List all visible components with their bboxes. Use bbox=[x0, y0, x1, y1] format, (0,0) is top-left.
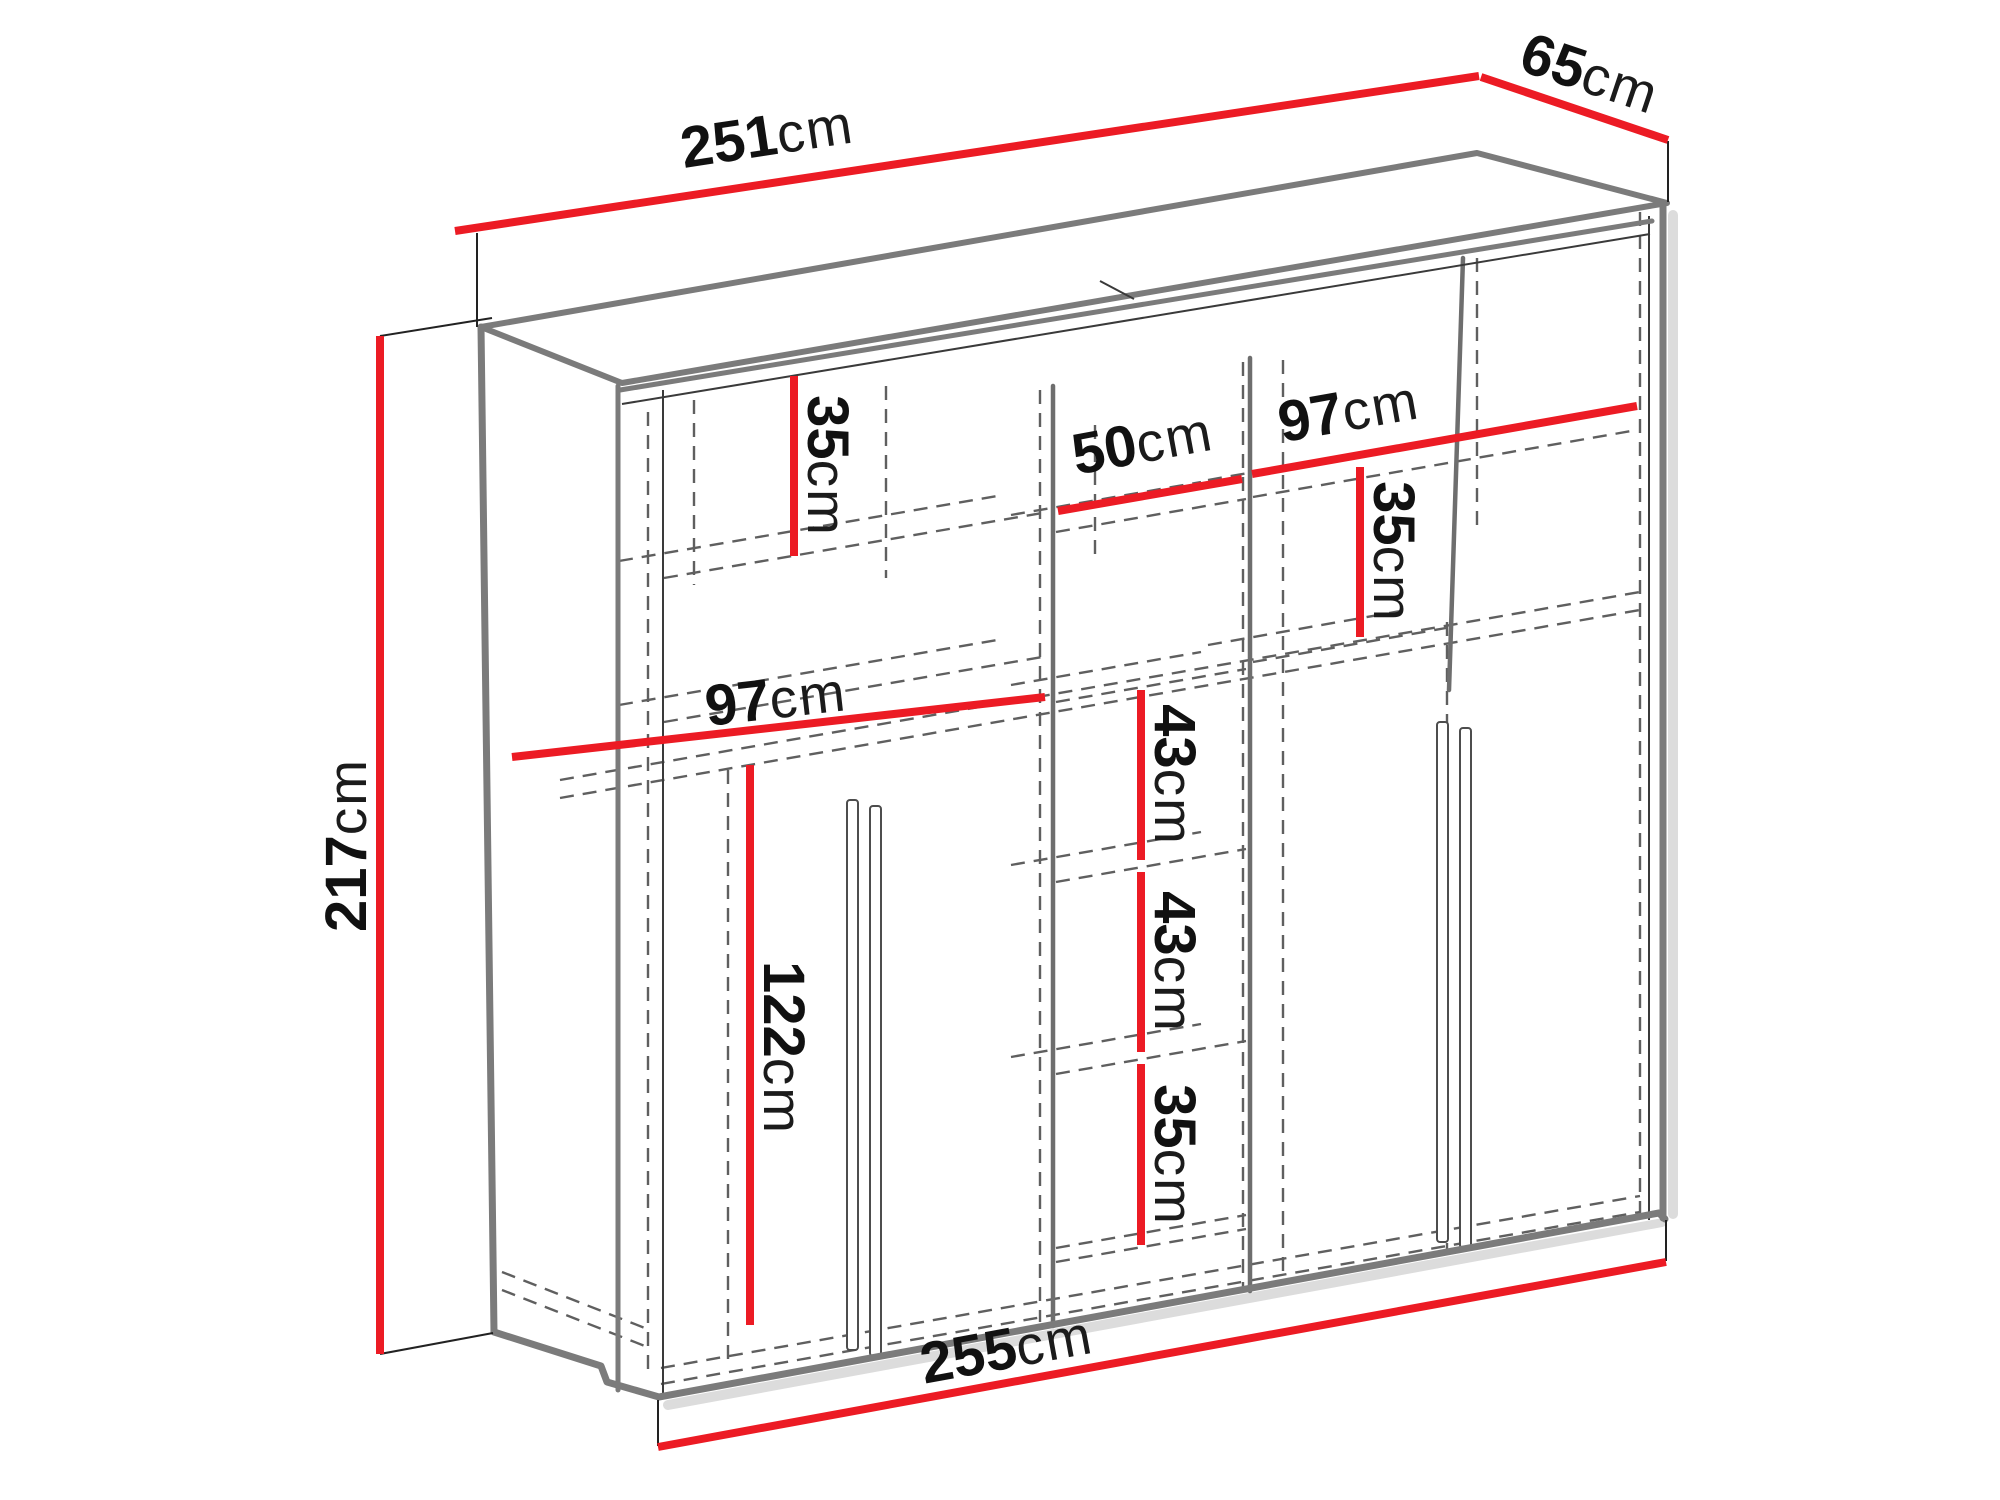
label-left-top-shelf: 35cm bbox=[795, 395, 860, 537]
wardrobe-dimension-diagram: 251cm 65cm 217cm 255cm 35cm 50cm 97cm 35… bbox=[0, 0, 2000, 1500]
handle-bar bbox=[1437, 722, 1448, 1242]
label-left-hanging: 122cm bbox=[751, 961, 816, 1135]
label-middle-gap-2: 43cm bbox=[1142, 891, 1207, 1033]
label-total-width-top: 251cm bbox=[676, 91, 858, 181]
handle-bar bbox=[847, 800, 858, 1350]
label-middle-gap-1: 43cm bbox=[1142, 704, 1207, 846]
label-right-top-shelf: 35cm bbox=[1361, 481, 1426, 623]
label-middle-bottom-gap: 35cm bbox=[1142, 1084, 1207, 1226]
wardrobe-body bbox=[481, 153, 1667, 1397]
diagram-canvas: 251cm 65cm 217cm 255cm 35cm 50cm 97cm 35… bbox=[0, 0, 2000, 1500]
handle-bar bbox=[1460, 728, 1471, 1248]
label-total-height: 217cm bbox=[314, 758, 379, 932]
handle-bar bbox=[870, 806, 881, 1356]
